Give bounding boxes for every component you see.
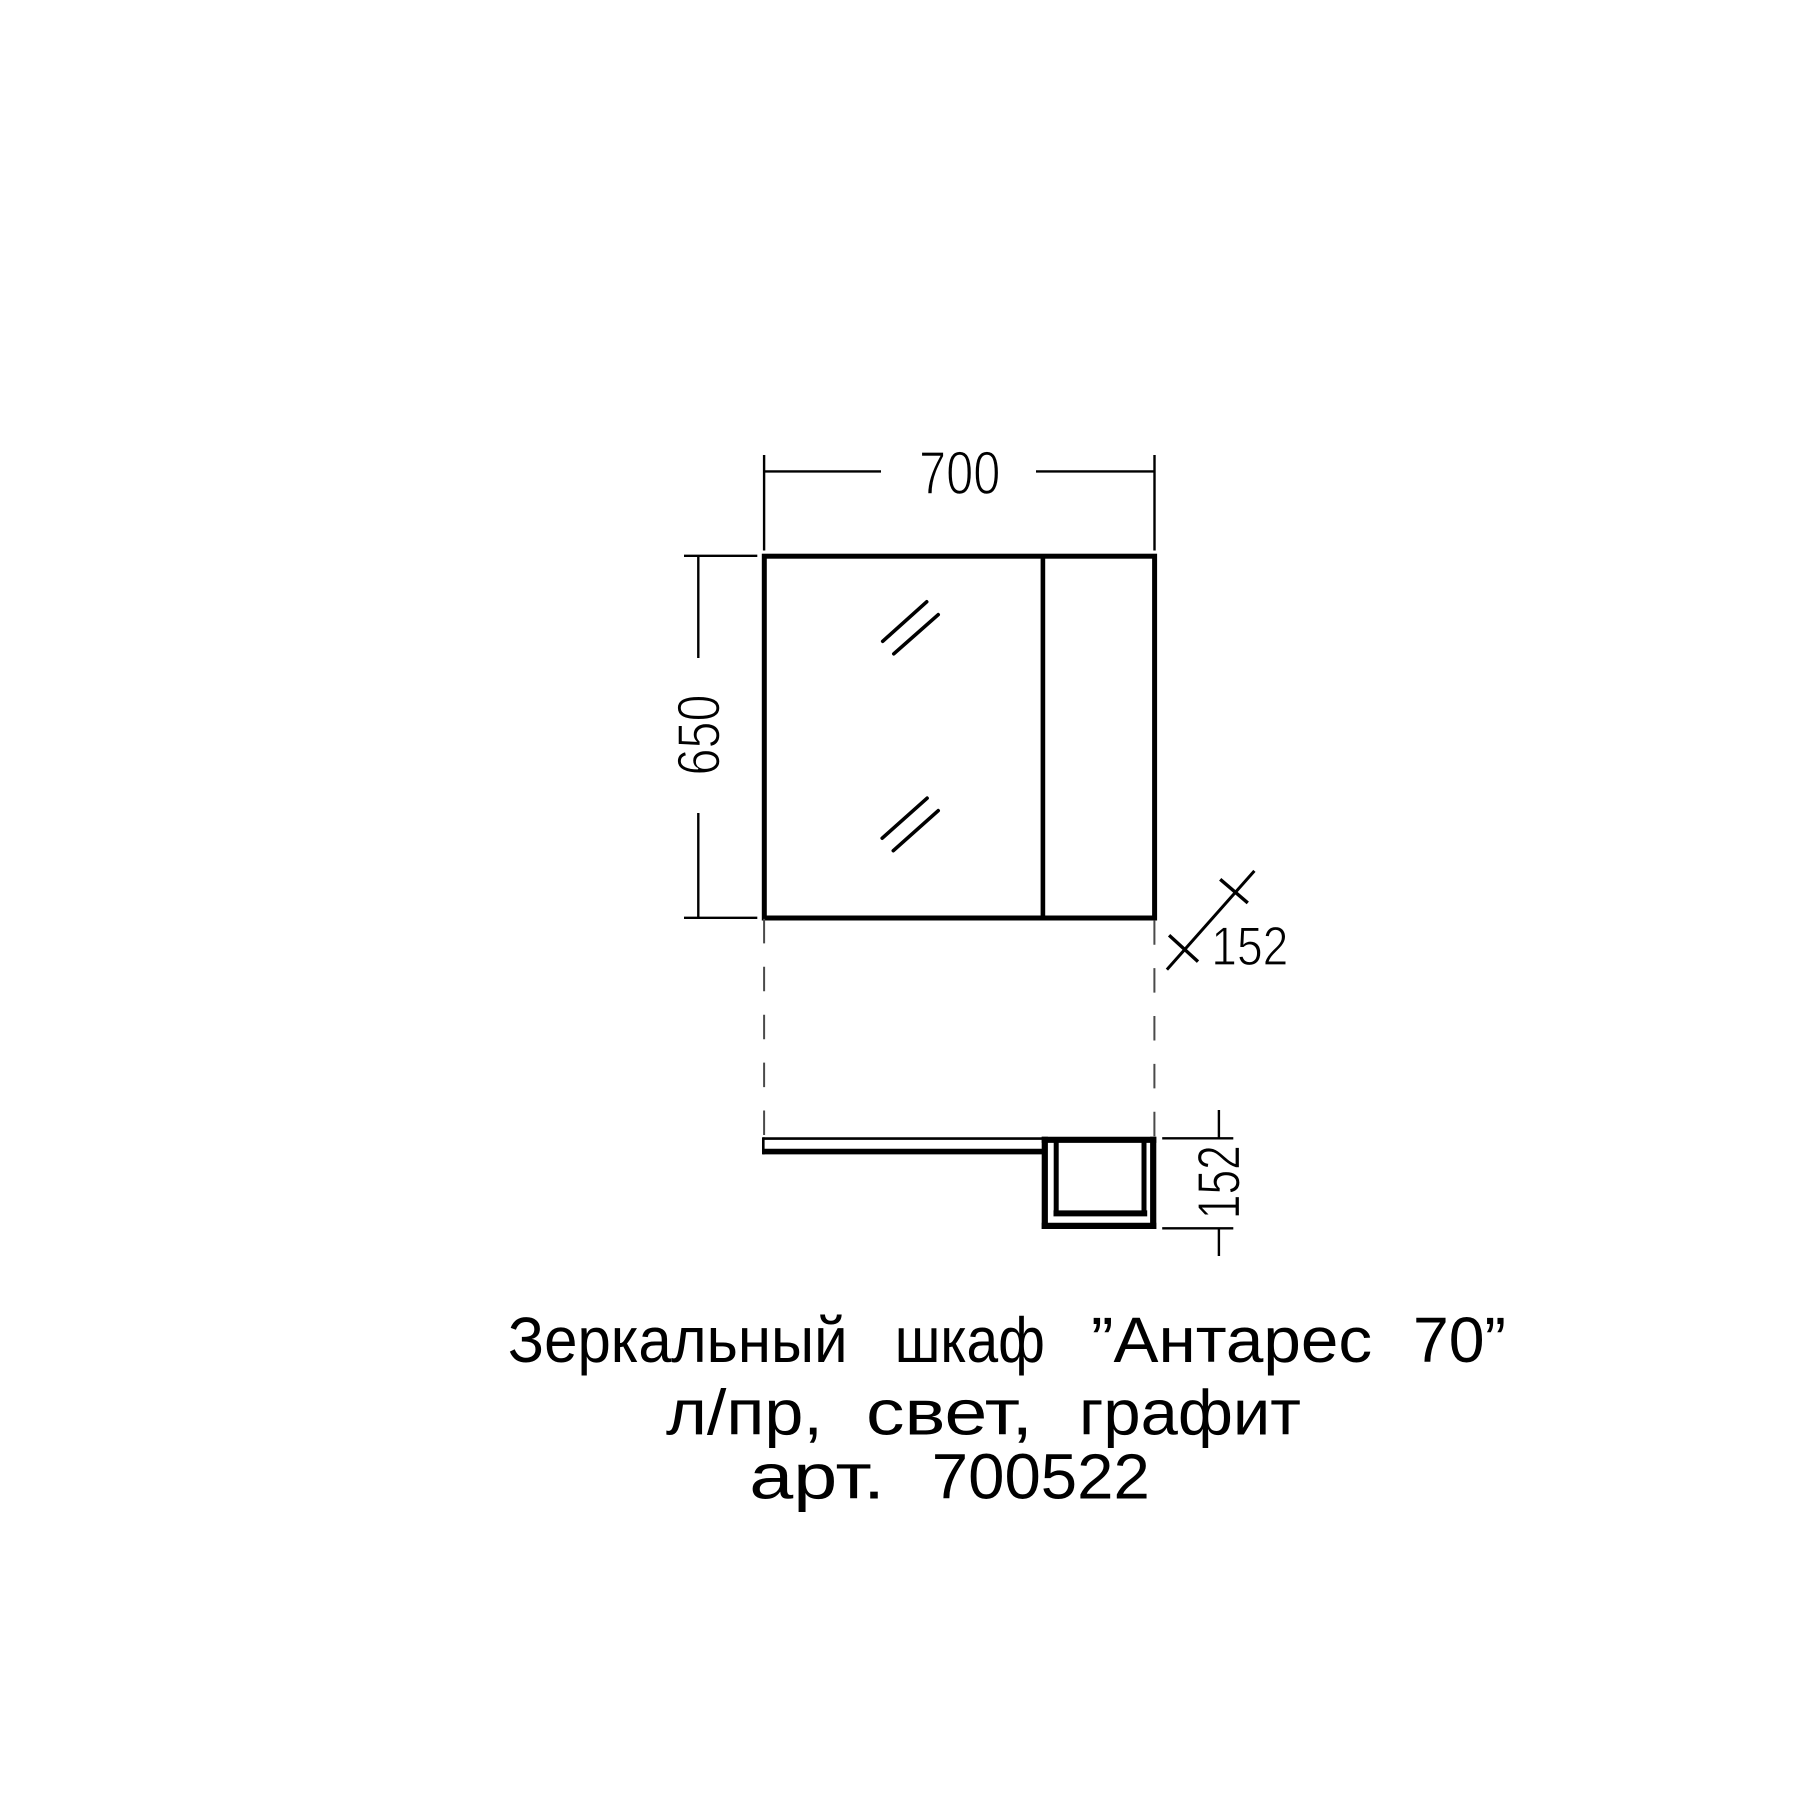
svg-text:графит: графит	[1079, 1377, 1301, 1448]
svg-text:Зеркальный: Зеркальный	[508, 1305, 848, 1376]
svg-text:л/пр,: л/пр,	[666, 1377, 823, 1448]
svg-text:арт.: арт.	[749, 1441, 885, 1512]
svg-text:свет,: свет,	[866, 1378, 1033, 1449]
svg-text:700522: 700522	[932, 1440, 1150, 1512]
svg-text:70”: 70”	[1413, 1304, 1506, 1376]
svg-text:650: 650	[666, 694, 733, 775]
svg-text:152: 152	[1211, 915, 1288, 977]
svg-text:шкаф: шкаф	[895, 1304, 1045, 1376]
svg-text:700: 700	[919, 439, 1000, 507]
svg-text:”Антарес: ”Антарес	[1091, 1304, 1372, 1376]
svg-text:152: 152	[1186, 1145, 1253, 1219]
